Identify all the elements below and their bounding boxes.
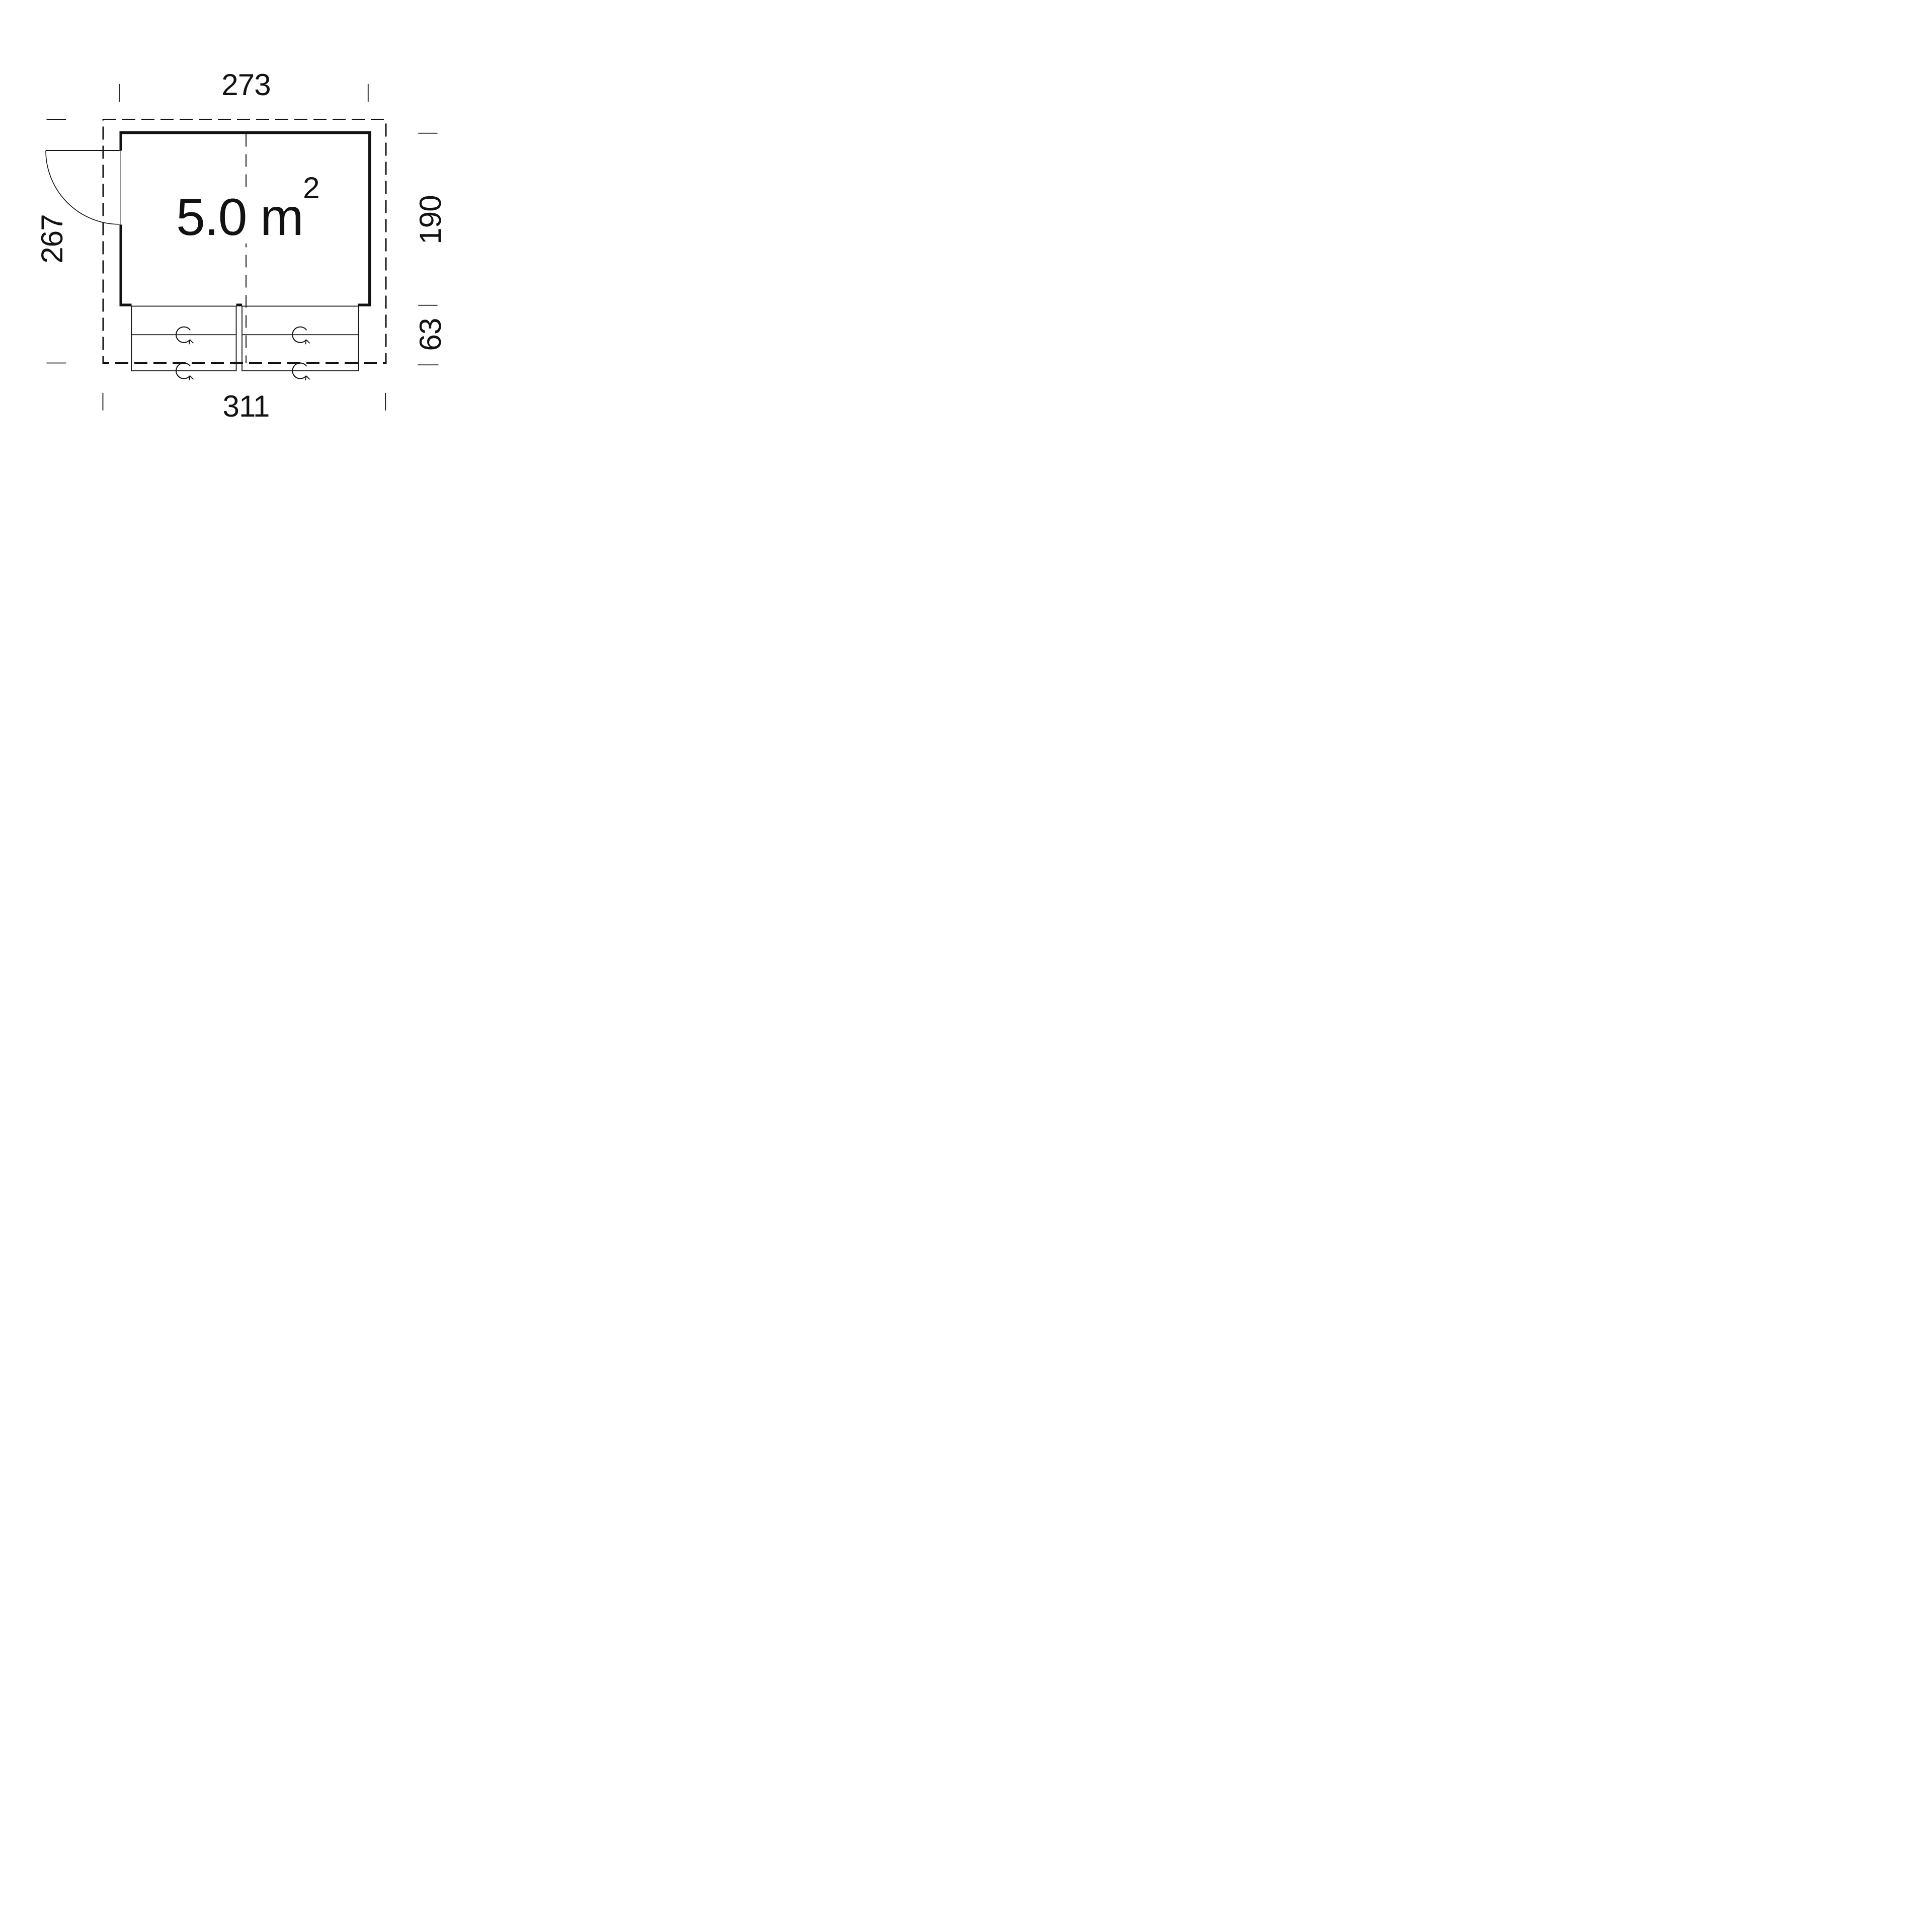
wall-bottom-left-pier <box>120 304 132 307</box>
dim-label-right-counter-depth: 63 <box>416 318 446 351</box>
rotation-arrow-icon <box>176 363 193 380</box>
floor-plan: 273 267 190 63 311 5.0m2 <box>0 0 483 483</box>
left-flap-panel <box>131 306 236 371</box>
wall-top <box>120 131 371 134</box>
area-label: 5.0m2 <box>171 191 324 244</box>
rotation-arrow-icon <box>292 363 309 380</box>
dim-label-bottom-total-width: 311 <box>223 391 270 422</box>
rotation-arrow-icon <box>292 327 309 344</box>
wall-bottom-right-pier <box>358 304 371 307</box>
wall-bottom-center-pier <box>236 304 243 307</box>
dim-label-right-room-depth: 190 <box>416 195 446 244</box>
wall-left-upper <box>120 131 123 151</box>
wall-right <box>368 131 371 306</box>
area-exponent: 2 <box>303 171 319 205</box>
rotation-arrow-icon <box>176 327 193 344</box>
right-flap-panel <box>242 306 359 371</box>
wall-left-lower <box>120 225 123 307</box>
dim-label-top-width: 273 <box>221 70 270 100</box>
area-value: 5.0 <box>176 188 247 247</box>
door-swing-arc <box>46 150 120 224</box>
dim-label-left-total-depth: 267 <box>37 214 67 263</box>
area-unit: m <box>260 188 303 247</box>
